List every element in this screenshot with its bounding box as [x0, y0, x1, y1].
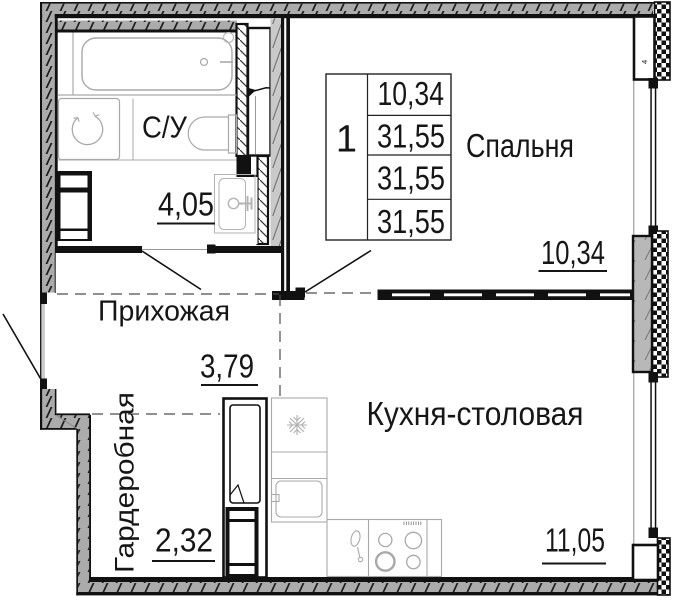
svg-text:31,55: 31,55: [377, 160, 445, 197]
svg-text:Кухня-столовая: Кухня-столовая: [367, 395, 584, 432]
svg-text:Спальня: Спальня: [466, 127, 574, 164]
svg-text:4,05: 4,05: [158, 186, 214, 223]
svg-text:С/У: С/У: [142, 110, 187, 145]
svg-text:31,55: 31,55: [377, 118, 445, 155]
svg-text:31,55: 31,55: [377, 203, 445, 240]
svg-text:4: 4: [640, 60, 649, 64]
svg-text:1: 1: [336, 119, 357, 161]
svg-text:Прихожая: Прихожая: [98, 296, 230, 328]
svg-text:10,34: 10,34: [541, 234, 605, 271]
svg-text:3,79: 3,79: [200, 348, 254, 385]
svg-text:Гардеробная: Гардеробная: [110, 392, 140, 573]
svg-text:10,34: 10,34: [378, 75, 445, 112]
svg-text:11,05: 11,05: [545, 522, 605, 559]
svg-text:2,32: 2,32: [155, 522, 213, 559]
